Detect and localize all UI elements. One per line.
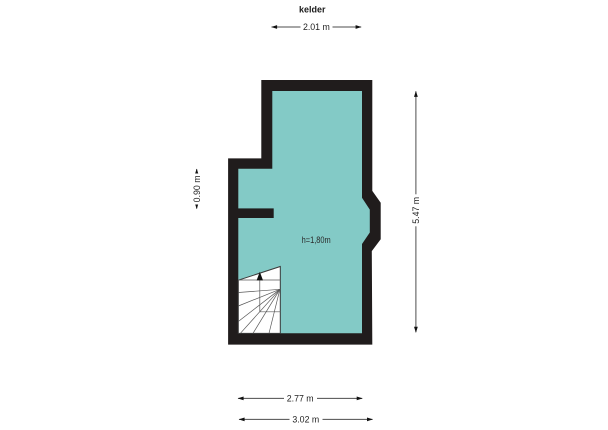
svg-text:3.02 m: 3.02 m <box>292 415 319 425</box>
svg-text:5.47 m: 5.47 m <box>411 197 421 224</box>
svg-text:2.77 m: 2.77 m <box>287 394 314 404</box>
svg-text:kelder: kelder <box>299 5 326 15</box>
svg-text:2.01 m: 2.01 m <box>303 22 330 32</box>
svg-text:h=1,80m: h=1,80m <box>302 235 331 245</box>
svg-text:0.90 m: 0.90 m <box>192 175 202 202</box>
